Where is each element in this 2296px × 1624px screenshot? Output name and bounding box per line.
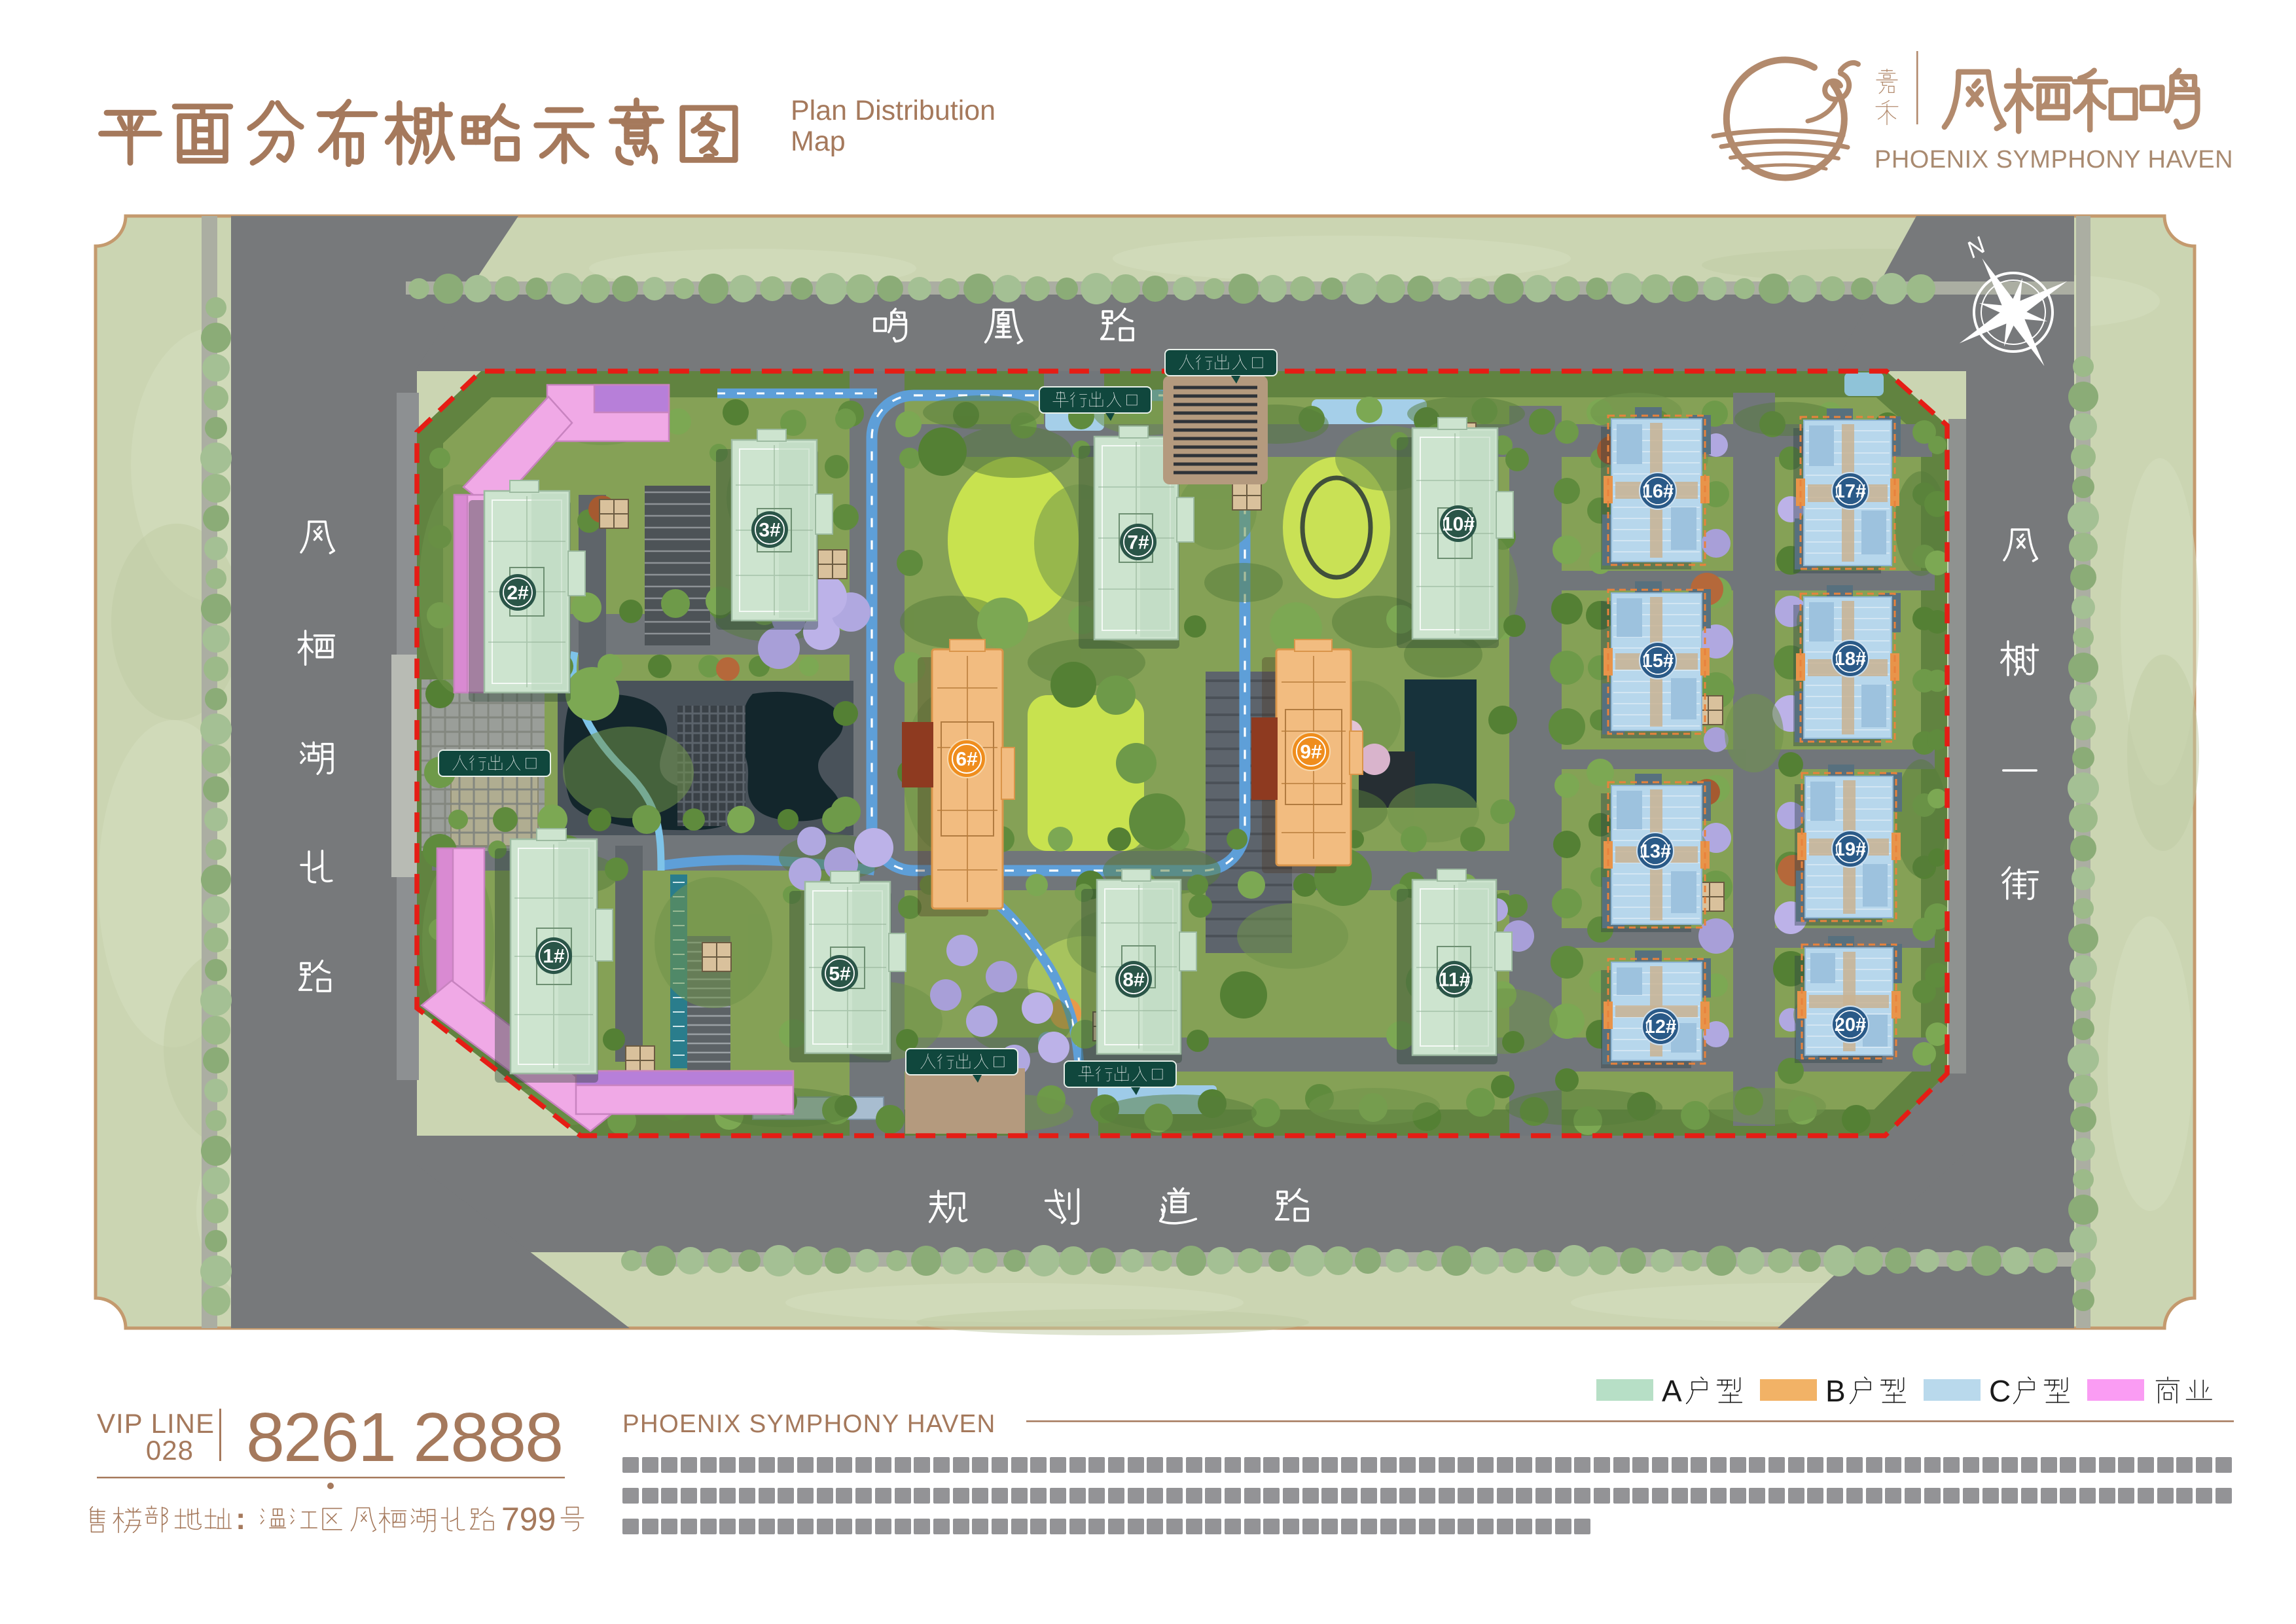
svg-text:19#: 19# — [1835, 839, 1866, 860]
svg-text:028: 028 — [146, 1435, 194, 1466]
svg-text:Map: Map — [791, 126, 846, 157]
svg-text:Plan Distribution: Plan Distribution — [791, 95, 996, 126]
svg-text:11#: 11# — [1439, 969, 1471, 991]
svg-text:6#: 6# — [956, 749, 978, 770]
svg-text:VIP LINE: VIP LINE — [97, 1408, 215, 1439]
svg-text:PHOENIX SYMPHONY HAVEN: PHOENIX SYMPHONY HAVEN — [622, 1410, 996, 1438]
svg-text:12#: 12# — [1645, 1017, 1676, 1038]
svg-text::: : — [236, 1502, 245, 1536]
svg-text:20#: 20# — [1835, 1015, 1866, 1036]
svg-text:10#: 10# — [1442, 514, 1475, 535]
svg-text:13#: 13# — [1640, 841, 1671, 862]
svg-text:PHOENIX SYMPHONY HAVEN: PHOENIX SYMPHONY HAVEN — [1874, 146, 2233, 173]
svg-text:C: C — [1989, 1374, 2011, 1408]
svg-text:5#: 5# — [829, 964, 851, 985]
svg-text:7#: 7# — [1127, 532, 1149, 554]
svg-text:17#: 17# — [1835, 481, 1866, 502]
svg-text:18#: 18# — [1835, 649, 1866, 670]
svg-text:1#: 1# — [543, 946, 565, 967]
svg-text:A: A — [1662, 1374, 1682, 1408]
svg-text:8#: 8# — [1122, 969, 1145, 991]
svg-text:B: B — [1825, 1374, 1846, 1408]
svg-text:799: 799 — [501, 1501, 556, 1538]
svg-text:16#: 16# — [1642, 481, 1674, 502]
svg-text:8261 2888: 8261 2888 — [246, 1399, 562, 1476]
svg-text:15#: 15# — [1642, 651, 1674, 672]
svg-text:2#: 2# — [507, 583, 529, 604]
svg-text:3#: 3# — [759, 520, 781, 541]
svg-text:9#: 9# — [1300, 742, 1322, 763]
